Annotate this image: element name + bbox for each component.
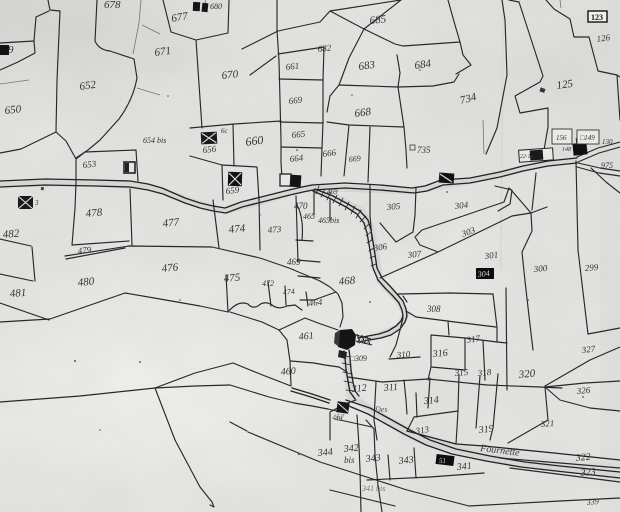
svg-text:479: 479 <box>77 245 92 256</box>
svg-text:464: 464 <box>308 297 323 308</box>
svg-text:660: 660 <box>244 133 264 149</box>
svg-text:320: 320 <box>517 368 536 382</box>
svg-text:652: 652 <box>79 79 98 93</box>
svg-text:Des: Des <box>374 405 387 414</box>
svg-text:460: 460 <box>356 336 369 346</box>
svg-text:307: 307 <box>406 249 422 261</box>
svg-text:□309: □309 <box>350 354 367 363</box>
svg-text:678: 678 <box>104 0 121 11</box>
svg-text:482: 482 <box>2 228 20 241</box>
svg-text:661: 661 <box>285 61 299 72</box>
svg-text:6c: 6c <box>221 127 229 135</box>
svg-text:3: 3 <box>34 199 39 207</box>
svg-text:322: 322 <box>574 451 591 464</box>
svg-text:668: 668 <box>354 106 373 120</box>
svg-text:305: 305 <box>385 201 401 212</box>
svg-text:475: 475 <box>223 272 241 285</box>
svg-text:312: 312 <box>350 383 367 395</box>
svg-text:308: 308 <box>426 304 441 314</box>
svg-text:319: 319 <box>477 423 494 436</box>
svg-text:476: 476 <box>161 261 179 275</box>
svg-text:123: 123 <box>591 13 603 22</box>
svg-text:682: 682 <box>317 43 332 54</box>
svg-text:460: 460 <box>280 366 296 378</box>
svg-text:343: 343 <box>397 454 414 467</box>
svg-text:323: 323 <box>579 466 596 479</box>
svg-text:125: 125 <box>556 78 575 92</box>
svg-text:481: 481 <box>9 287 26 300</box>
svg-text:735: 735 <box>417 145 431 155</box>
svg-text:654 bis: 654 bis <box>143 136 166 145</box>
svg-text:653: 653 <box>82 159 97 170</box>
svg-text:975: 975 <box>601 161 613 170</box>
svg-text:bis: bis <box>344 455 355 465</box>
svg-text:465bis: 465bis <box>318 216 339 225</box>
svg-text:311: 311 <box>382 382 398 394</box>
svg-text:315: 315 <box>453 367 469 378</box>
svg-text:670: 670 <box>221 68 239 82</box>
svg-text:666: 666 <box>322 147 337 159</box>
svg-text:684: 684 <box>414 58 433 72</box>
svg-text:314: 314 <box>422 395 439 407</box>
svg-text:321: 321 <box>539 418 554 429</box>
svg-text:327: 327 <box>580 344 596 356</box>
svg-text:473: 473 <box>267 224 282 235</box>
svg-text:472: 472 <box>262 279 274 288</box>
svg-text:341 bis: 341 bis <box>361 484 385 493</box>
svg-text:299: 299 <box>584 262 599 273</box>
svg-text:685: 685 <box>369 13 387 27</box>
svg-text:474: 474 <box>228 223 246 236</box>
svg-text:□149: □149 <box>580 134 595 142</box>
svg-text:680: 680 <box>210 2 222 11</box>
svg-text:316: 316 <box>431 348 448 360</box>
svg-text:665: 665 <box>291 129 306 140</box>
svg-text:156: 156 <box>556 134 567 142</box>
svg-text:659: 659 <box>225 185 240 196</box>
svg-text:469: 469 <box>327 188 338 196</box>
svg-text:317: 317 <box>465 333 481 345</box>
svg-text:461: 461 <box>298 330 314 343</box>
svg-text:318: 318 <box>476 367 492 378</box>
svg-text:126: 126 <box>596 32 611 44</box>
svg-text:474: 474 <box>282 287 295 297</box>
svg-text:341: 341 <box>455 461 472 473</box>
svg-text:301: 301 <box>483 250 498 261</box>
svg-text:683: 683 <box>358 59 377 73</box>
svg-text:343: 343 <box>364 452 381 465</box>
svg-text:664: 664 <box>289 153 304 164</box>
svg-text:480: 480 <box>77 276 95 289</box>
svg-text:468: 468 <box>338 275 356 288</box>
svg-text:477: 477 <box>162 216 180 230</box>
svg-text:306: 306 <box>372 241 388 253</box>
svg-text:669: 669 <box>348 154 361 164</box>
svg-text:51: 51 <box>439 457 446 465</box>
svg-text:465: 465 <box>303 212 315 221</box>
svg-text:478: 478 <box>85 207 103 220</box>
svg-text:22·11: 22·11 <box>520 154 533 160</box>
svg-text:9: 9 <box>8 44 14 56</box>
svg-text:148: 148 <box>562 146 571 153</box>
svg-text:342: 342 <box>342 443 359 455</box>
svg-text:469: 469 <box>287 257 301 267</box>
svg-text:339: 339 <box>585 497 599 507</box>
svg-text:130: 130 <box>602 138 613 146</box>
svg-text:304: 304 <box>453 200 469 212</box>
svg-text:470: 470 <box>294 201 308 211</box>
svg-text:656: 656 <box>202 144 217 155</box>
svg-text:344: 344 <box>316 447 333 459</box>
svg-text:650: 650 <box>4 103 22 117</box>
svg-text:300: 300 <box>532 263 548 274</box>
svg-text:313: 313 <box>414 424 430 436</box>
svg-text:310: 310 <box>395 349 411 360</box>
svg-text:671: 671 <box>154 45 172 59</box>
svg-text:304: 304 <box>476 269 490 279</box>
svg-text:326: 326 <box>575 385 591 396</box>
svg-text:669: 669 <box>288 95 303 106</box>
svg-text:49: 49 <box>335 415 343 423</box>
